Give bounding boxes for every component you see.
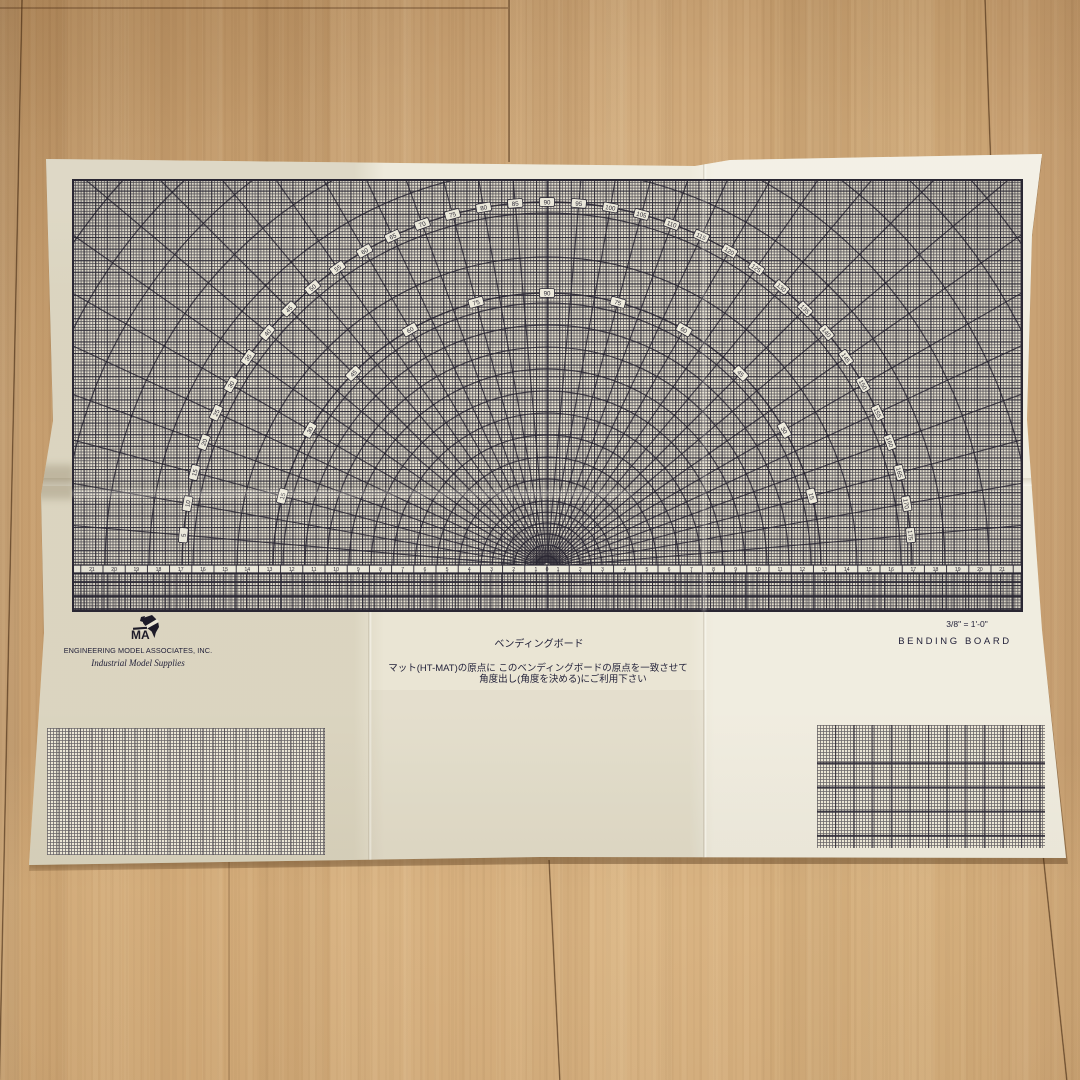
svg-text:MA: MA: [131, 628, 150, 640]
